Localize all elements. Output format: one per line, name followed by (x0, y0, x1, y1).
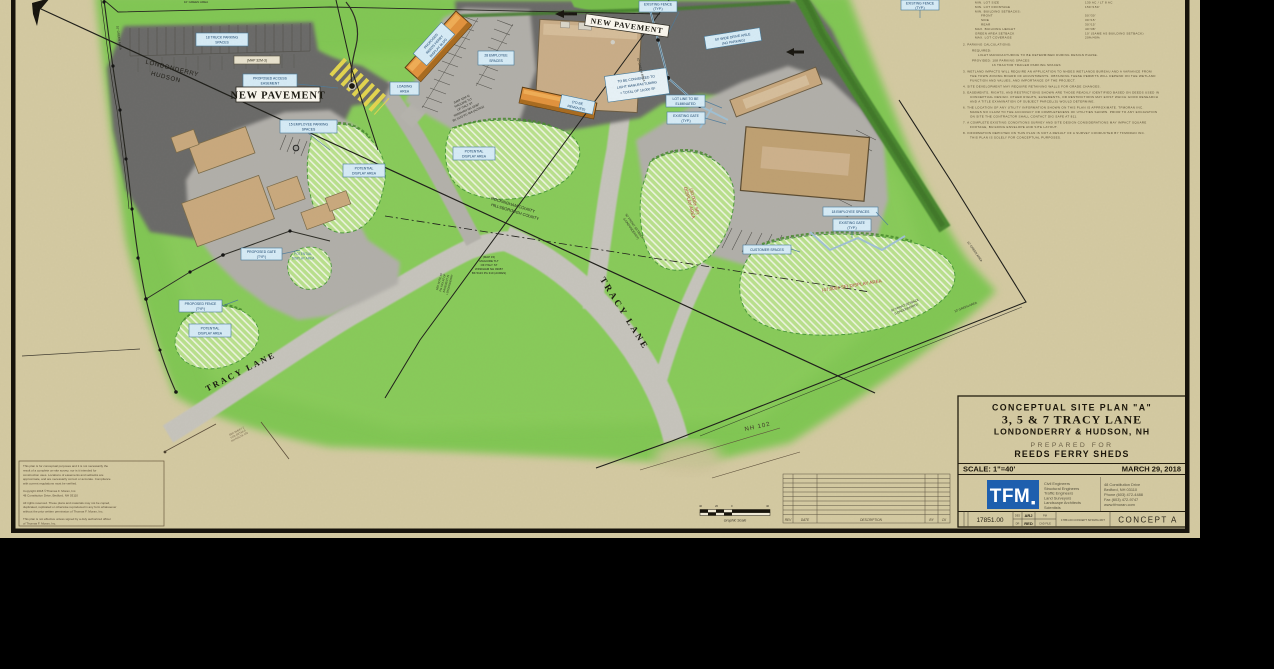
svg-text:result of a complete on-site s: result of a complete on-site survey, nor… (23, 468, 96, 472)
svg-text:5. EASEMENTS, RIGHTS, AND RES: 5. EASEMENTS, RIGHTS, AND RESTRICTIONS S… (963, 91, 1159, 95)
svg-text:CONCEPTUAL SITE PLAN "A": CONCEPTUAL SITE PLAN "A" (992, 403, 1152, 413)
svg-text:REQUIRED:: REQUIRED: (972, 49, 991, 53)
svg-text:3. WETLAND IMPACTS WILL REQUI: 3. WETLAND IMPACTS WILL REQUIRE AN APPLI… (963, 70, 1152, 74)
svg-text:48 Constitution Drive, Bedford: 48 Constitution Drive, Bedford, NH 03110 (23, 493, 78, 497)
svg-text:MAX. BUILDING HEIGHT: MAX. BUILDING HEIGHT (975, 27, 1016, 31)
svg-text:40: 40 (766, 504, 770, 508)
svg-text:MIN. LOT SIZE: MIN. LOT SIZE (975, 1, 999, 5)
svg-text:130 AC / LT 8 AC: 130 AC / LT 8 AC (1085, 1, 1113, 5)
svg-text:4. SITE DEVELOPMENT MAY REQUI: 4. SITE DEVELOPMENT MAY REQUIRE RETAININ… (963, 85, 1101, 89)
svg-text:www.tfmoran.com: www.tfmoran.com (1104, 502, 1135, 507)
svg-text:SIDE: SIDE (981, 18, 989, 22)
svg-text:construction uses. Locations: construction uses. Locations of easement… (23, 473, 104, 477)
svg-text:PREPARED FOR: PREPARED FOR (1030, 442, 1113, 449)
svg-text:PROVIDED: 108 PARKING SPACES: PROVIDED: 108 PARKING SPACES (972, 59, 1030, 63)
svg-text:FOOTAGE, BUILDING ENVELOPE AND: FOOTAGE, BUILDING ENVELOPE AND SITE LAYO… (970, 125, 1058, 129)
svg-text:MAKES NO CLAIM TO THE ACCURACY: MAKES NO CLAIM TO THE ACCURACY OR COMPLE… (970, 110, 1157, 114)
svg-text:ARJ: ARJ (1024, 513, 1032, 518)
svg-text:2. PARKING CALCULATIONS:: 2. PARKING CALCULATIONS: (963, 43, 1011, 47)
svg-text:150'/150': 150'/150' (1085, 5, 1100, 9)
svg-text:REV: REV (785, 518, 792, 522)
svg-text:Graphic Scale: Graphic Scale (724, 519, 747, 523)
svg-text:3, 5 & 7 TRACY LANE: 3, 5 & 7 TRACY LANE (1002, 413, 1142, 427)
svg-text:duplicated, replicated or othe: duplicated, replicated or otherwise repr… (23, 505, 116, 509)
svg-text:MAX. LOT COVERAGE: MAX. LOT COVERAGE (975, 36, 1012, 40)
svg-text:DR: DR (1016, 522, 1020, 526)
svg-text:20: 20 (715, 504, 719, 508)
svg-text:17851.00: 17851.00 (976, 517, 1003, 524)
svg-text:DES: DES (1015, 514, 1021, 518)
svg-text:CONCEPTUAL DESIGN. OTHER RIGH: CONCEPTUAL DESIGN. OTHER RIGHTS, EASEMEN… (970, 95, 1158, 99)
svg-text:AND A TITLE EXAMINATION OF SUB: AND A TITLE EXAMINATION OF SUBJECT PARCE… (970, 99, 1095, 103)
svg-text:40: 40 (699, 504, 703, 508)
svg-text:40'/38': 40'/38' (1085, 27, 1096, 31)
svg-text:FRONT: FRONT (981, 14, 993, 18)
svg-text:PM: PM (1043, 514, 1047, 518)
svg-text:ON SITE THE CONTRACTOR SHALL C: ON SITE THE CONTRACTOR SHALL CONTACT DIG… (970, 114, 1077, 118)
svg-text:17851.00 CONCEPT SP.DWG.RFT: 17851.00 CONCEPT SP.DWG.RFT (1061, 518, 1105, 522)
svg-text:30'/15': 30'/15' (1085, 23, 1096, 27)
svg-text:FUNCTION AND VALUES, AND IMPOR: FUNCTION AND VALUES, AND IMPORTANCE OF T… (970, 78, 1076, 82)
svg-text:THIS PLAN IS SOLELY FOR CONCEP: THIS PLAN IS SOLELY FOR CONCEPTUAL PURPO… (970, 135, 1061, 139)
svg-text:8. INFORMATION DEPICTED ON TH: 8. INFORMATION DEPICTED ON THIS PLAN IS … (963, 131, 1145, 135)
svg-text:CAD FILE: CAD FILE (1039, 522, 1051, 526)
svg-text:20%/40%: 20%/40% (1085, 36, 1100, 40)
svg-text:All rights reserved. These pl: All rights reserved. These plans and mat… (23, 501, 110, 505)
svg-text:10' (SAME AS BUILDING SETBACK): 10' (SAME AS BUILDING SETBACK) (1085, 31, 1144, 35)
svg-text:LIGHT MANUFACTURING TO BE DETE: LIGHT MANUFACTURING TO BE DETERMINED DUR… (978, 53, 1098, 57)
svg-text:This plan is for conceptual pu: This plan is for conceptual purposes and… (23, 464, 108, 468)
svg-text:MARCH 29, 2018: MARCH 29, 2018 (1122, 465, 1181, 474)
svg-text:without the prior written perm: without the prior written permission of … (23, 510, 103, 514)
svg-text:approximate, and are necessari: approximate, and are necessarily correct… (23, 477, 111, 481)
svg-text:DESCRIPTION: DESCRIPTION (860, 518, 882, 522)
svg-text:7. A COMPLETE EXISTING CONDIT: 7. A COMPLETE EXISTING CONDITIONS SURVEY… (963, 121, 1147, 125)
svg-text:CONCEPT A: CONCEPT A (1118, 516, 1178, 525)
svg-text:Copyright 2018 ©Thomas F. Mor: Copyright 2018 ©Thomas F. Moran, Inc. (23, 489, 76, 493)
svg-text:Scientists: Scientists (1044, 505, 1061, 510)
svg-text:REEDS FERRY SHEDS: REEDS FERRY SHEDS (1014, 449, 1129, 459)
svg-text:MIN. LOT FRONTAGE: MIN. LOT FRONTAGE (975, 5, 1010, 9)
svg-text:RED: RED (1024, 521, 1033, 526)
svg-text:30'/15': 30'/15' (1085, 18, 1096, 22)
svg-text:GREEN AREA SETBACK: GREEN AREA SETBACK (975, 31, 1015, 35)
svg-text:with current regulations must: with current regulations must be verifie… (23, 482, 77, 486)
svg-text:SCALE: 1"=40': SCALE: 1"=40' (963, 465, 1015, 474)
svg-text:50'/30': 50'/30' (1085, 14, 1096, 18)
svg-text:LONDONDERRY & HUDSON, NH: LONDONDERRY & HUDSON, NH (994, 427, 1150, 437)
svg-text:THE TOWN ZONING BOARD OF ADJUS: THE TOWN ZONING BOARD OF ADJUSTMENTS. OB… (970, 74, 1156, 78)
svg-text:This plan is not effective unl: This plan is not effective unless signed… (23, 517, 111, 521)
svg-text:MIN. BUILDING SETBACKS:: MIN. BUILDING SETBACKS: (975, 9, 1021, 13)
svg-text:DATE: DATE (801, 518, 810, 522)
svg-text:of Thomas F. Moran, Inc.: of Thomas F. Moran, Inc. (23, 521, 56, 525)
svg-text:TFM: TFM (990, 486, 1031, 507)
svg-text:16 TRACTOR TRAILER PARKING SPA: 16 TRACTOR TRAILER PARKING SPACES (992, 63, 1061, 67)
svg-text:REAR: REAR (981, 23, 991, 27)
svg-text:6. THE LOCATION OF ANY UTILIT: 6. THE LOCATION OF ANY UTILITY INFORMATI… (963, 106, 1144, 110)
